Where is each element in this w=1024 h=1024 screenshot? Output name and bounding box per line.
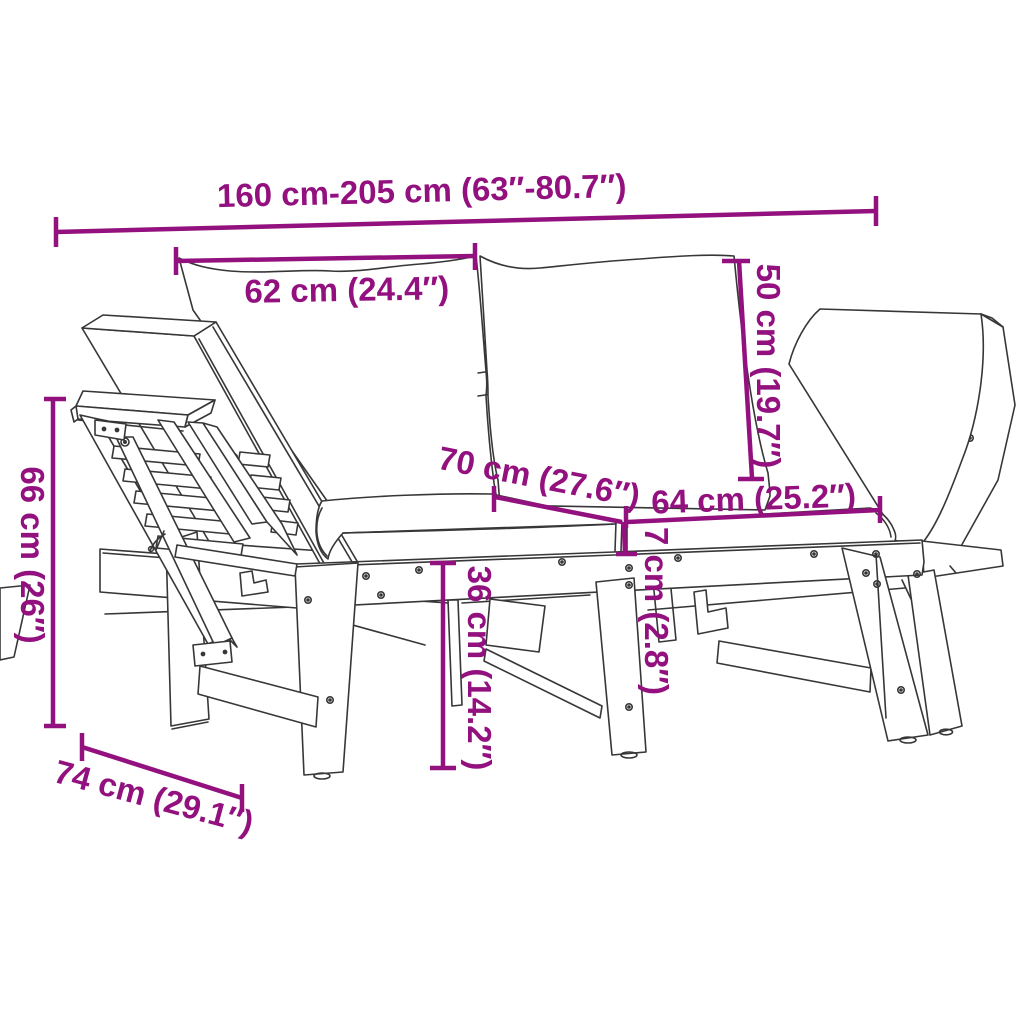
svg-text:7 cm (2.8″): 7 cm (2.8″) <box>638 527 675 695</box>
svg-text:50 cm (19.7″): 50 cm (19.7″) <box>750 264 787 469</box>
svg-text:36 cm (14.2″): 36 cm (14.2″) <box>461 566 498 771</box>
svg-text:62 cm (24.4″): 62 cm (24.4″) <box>244 269 449 310</box>
svg-text:66 cm (26″): 66 cm (26″) <box>14 466 51 643</box>
svg-text:64 cm (25.2″): 64 cm (25.2″) <box>651 476 857 520</box>
